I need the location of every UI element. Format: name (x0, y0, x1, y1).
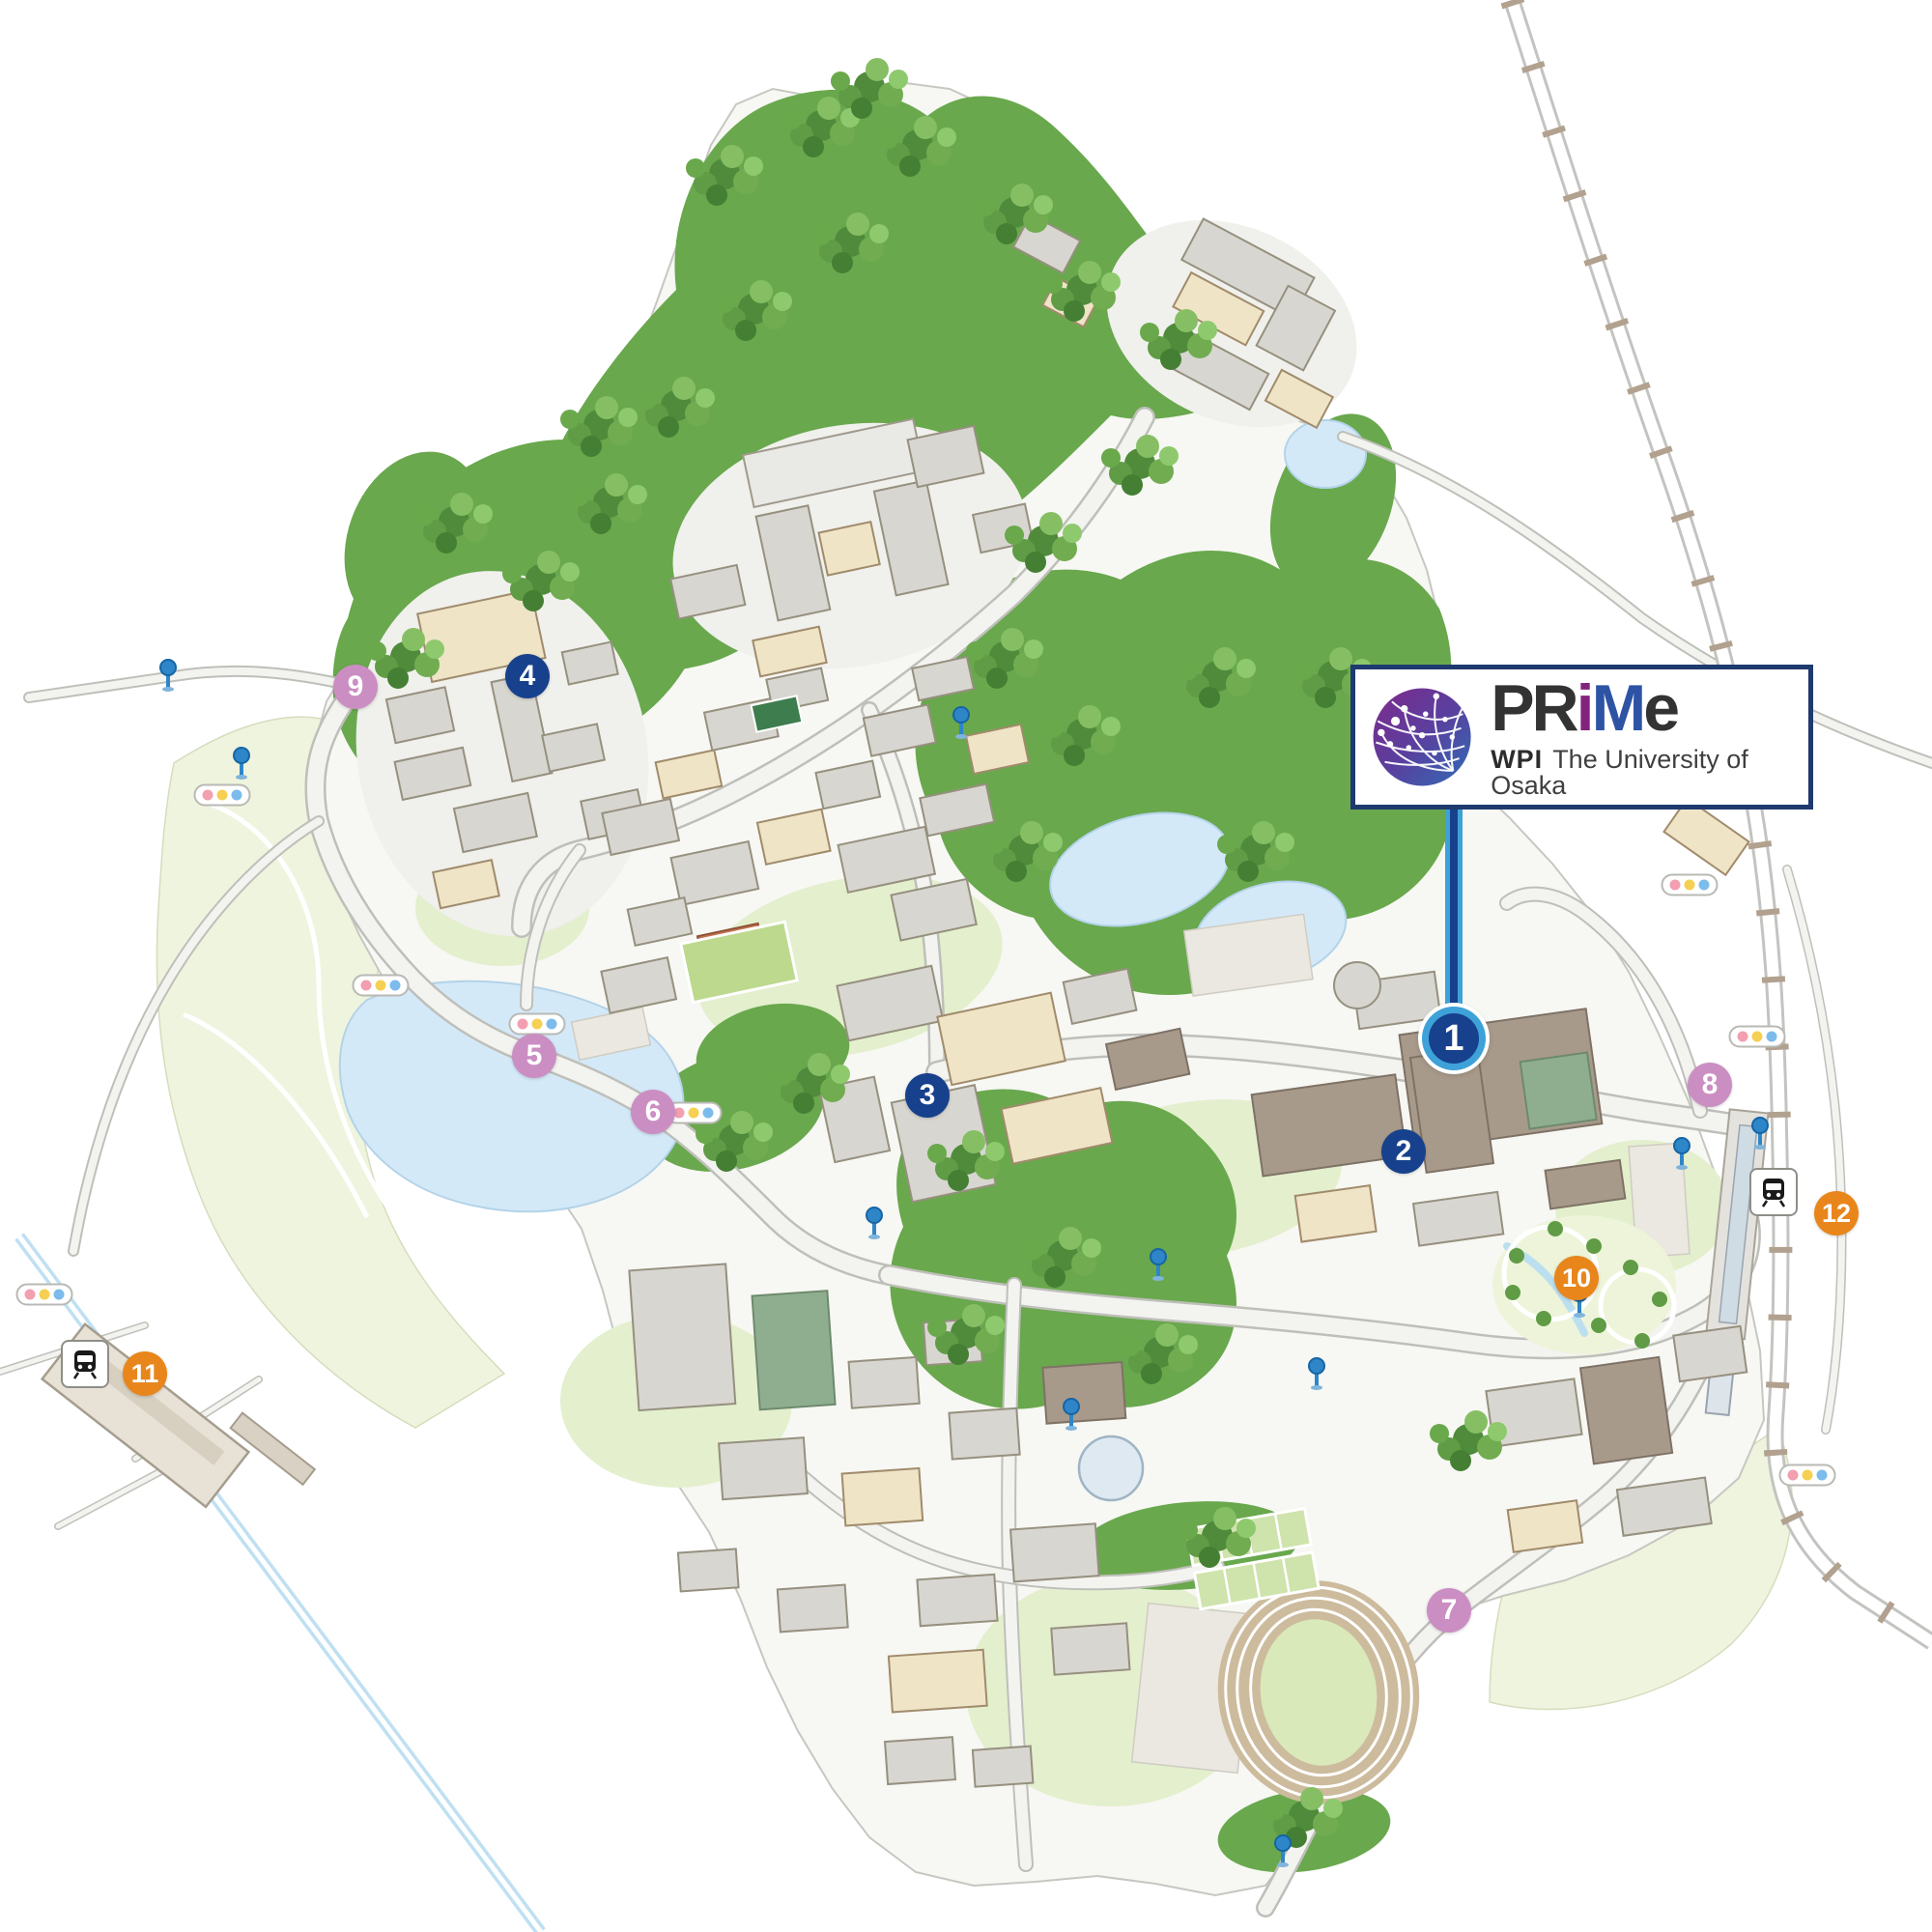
map-pin-icon (866, 1207, 885, 1241)
map-marker-9[interactable]: 9 (333, 665, 378, 709)
bus-stop-icon (16, 1284, 73, 1306)
northeast-pond (1285, 420, 1366, 488)
map-pin-icon (233, 747, 252, 781)
bus-stop-icon (194, 784, 251, 807)
train-station-icon (1749, 1168, 1798, 1216)
logo-subtitle: WPIThe University of Osaka (1491, 747, 1808, 799)
prime-logo-text: PR i M e WPIThe University of Osaka (1491, 675, 1808, 799)
map-pin-icon (952, 706, 972, 741)
map-marker-2[interactable]: 2 (1381, 1129, 1426, 1174)
bus-stop-icon (509, 1013, 566, 1036)
logo-segment-i: i (1577, 675, 1592, 741)
map-pin-icon (1150, 1248, 1169, 1283)
train-station-icon (61, 1340, 109, 1388)
map-pin-icon (1063, 1398, 1082, 1433)
map-marker-1[interactable]: 1 (1429, 1013, 1479, 1064)
campus-map-illustration (0, 0, 1932, 1932)
map-marker-10[interactable]: 10 (1554, 1256, 1599, 1300)
bus-stop-icon (1729, 1026, 1786, 1048)
map-pin-icon (1673, 1137, 1692, 1172)
logo-segment-m: M (1592, 675, 1644, 741)
prime-globe-logo-icon (1369, 680, 1475, 794)
logo-segment-pr: PR (1491, 675, 1576, 741)
map-marker-7[interactable]: 7 (1427, 1588, 1471, 1633)
bus-stop-icon (1662, 874, 1719, 896)
map-marker-12[interactable]: 12 (1814, 1191, 1859, 1236)
map-marker-8[interactable]: 8 (1688, 1063, 1732, 1107)
prime-logo-box: PR i M e WPIThe University of Osaka (1350, 665, 1813, 810)
logo-subtitle-wpi: WPI (1491, 745, 1543, 774)
map-marker-11[interactable]: 11 (123, 1351, 167, 1396)
map-pin-icon (1751, 1117, 1771, 1151)
prime-wordmark: PR i M e (1491, 675, 1808, 741)
map-marker-3[interactable]: 3 (905, 1073, 950, 1118)
map-marker-5[interactable]: 5 (512, 1034, 556, 1078)
marker-1-callout-line (1450, 808, 1458, 1038)
bus-stop-icon (1779, 1464, 1836, 1487)
map-pin-icon (1274, 1834, 1293, 1869)
map-pin-icon (159, 659, 179, 694)
campus-map: 123456789101112 (0, 0, 1932, 1932)
map-marker-4[interactable]: 4 (505, 654, 550, 698)
map-marker-6[interactable]: 6 (631, 1090, 675, 1134)
logo-segment-e: e (1643, 675, 1677, 741)
bus-stop-icon (353, 975, 410, 997)
map-pin-icon (1308, 1357, 1327, 1392)
